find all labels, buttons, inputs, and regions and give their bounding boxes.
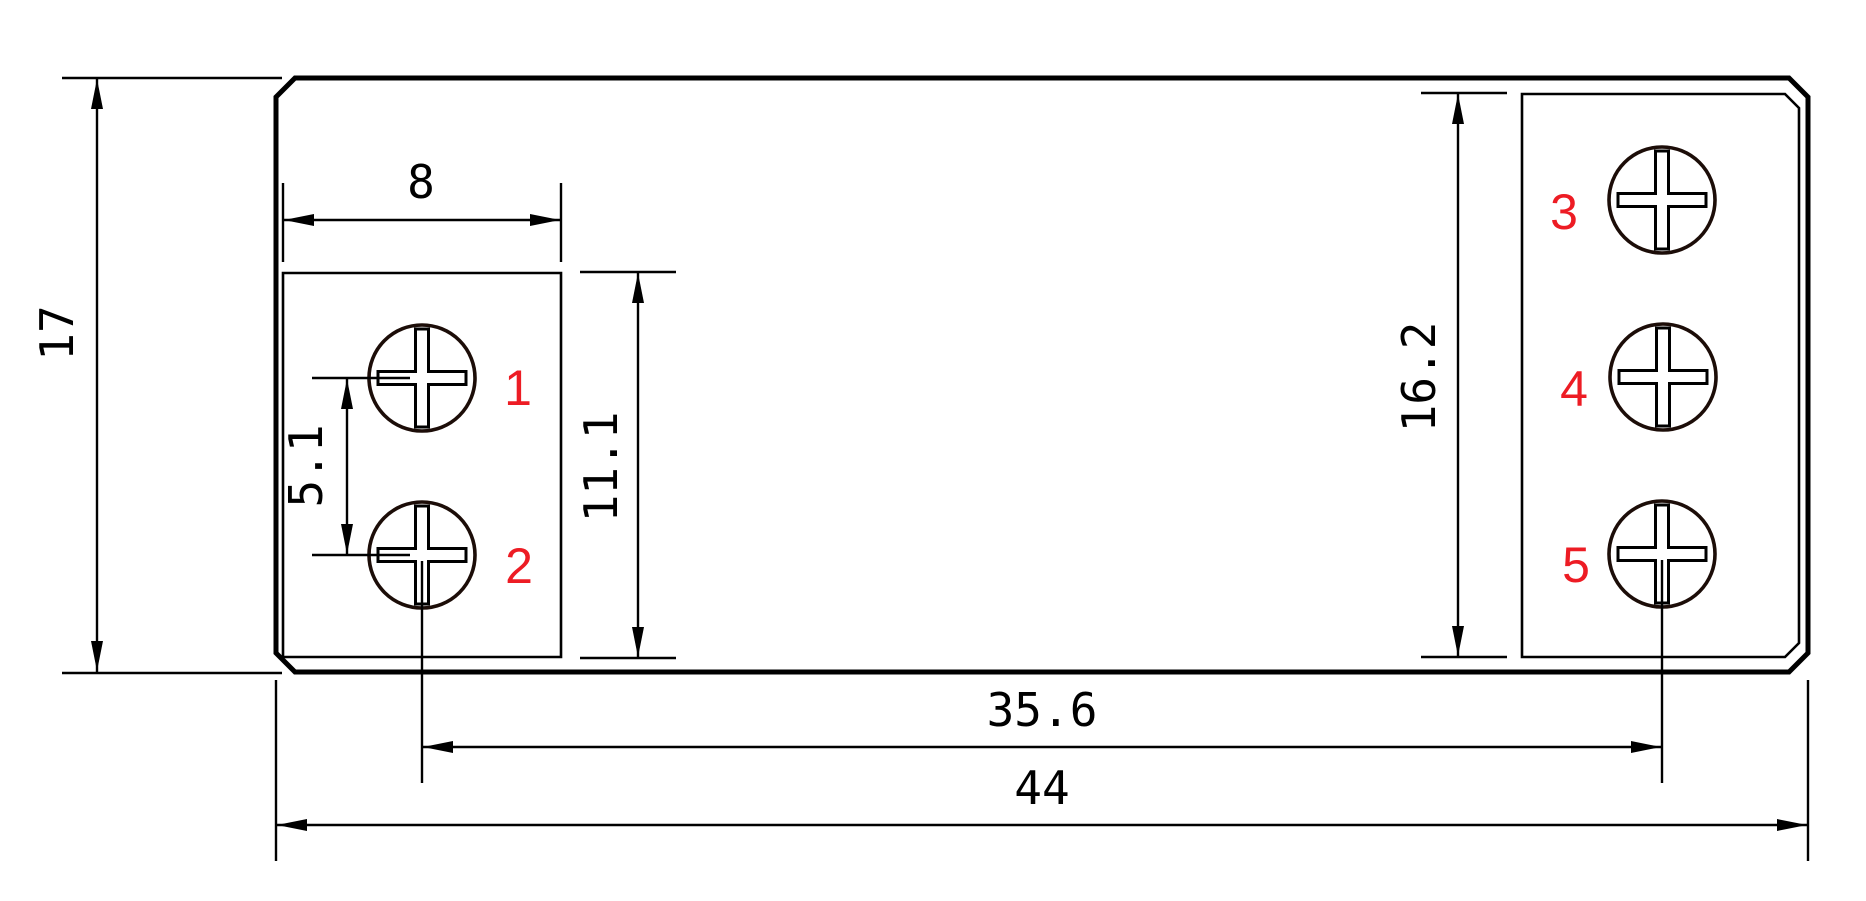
terminal-label-3: 3 <box>1550 184 1578 240</box>
arrow-left-icon <box>423 741 453 753</box>
terminal-block-dimension-drawing: 17 8 5.1 11.1 <box>0 0 1866 901</box>
terminal-label-5: 5 <box>1562 537 1590 593</box>
arrow-up-icon <box>91 79 103 109</box>
arrow-left-icon <box>284 214 314 226</box>
dimension-left-block-width: 8 <box>283 155 561 262</box>
arrow-right-icon <box>530 214 560 226</box>
arrow-up-icon <box>341 379 353 409</box>
arrow-up-icon <box>1452 94 1464 124</box>
arrow-down-icon <box>91 641 103 671</box>
dimension-value: 11.1 <box>574 412 628 523</box>
dimension-overall-height: 17 <box>30 78 282 673</box>
terminal-label-4: 4 <box>1560 361 1588 417</box>
arrow-up-icon <box>632 273 644 303</box>
dimension-value: 17 <box>30 305 84 360</box>
dimension-value: 44 <box>1014 761 1069 815</box>
terminal-label-2: 2 <box>505 538 533 594</box>
arrow-right-icon <box>1777 819 1807 831</box>
dimension-value: 35.6 <box>987 683 1098 737</box>
arrow-down-icon <box>341 524 353 554</box>
dimension-left-block-height: 11.1 <box>574 272 676 658</box>
dimension-right-block-height: 16.2 <box>1392 93 1507 657</box>
arrow-down-icon <box>632 627 644 657</box>
arrow-down-icon <box>1452 626 1464 656</box>
arrow-right-icon <box>1631 741 1661 753</box>
arrow-left-icon <box>277 819 307 831</box>
screw-4 <box>1610 324 1716 430</box>
technical-drawing-page: 17 8 5.1 11.1 <box>0 0 1866 901</box>
dimension-value: 5.1 <box>279 424 333 507</box>
screw-3 <box>1609 147 1715 253</box>
dimension-value: 16.2 <box>1392 322 1446 433</box>
terminal-label-1: 1 <box>504 360 532 416</box>
dimension-value: 8 <box>407 155 435 209</box>
dimension-terminal-span: 35.6 <box>422 683 1662 753</box>
